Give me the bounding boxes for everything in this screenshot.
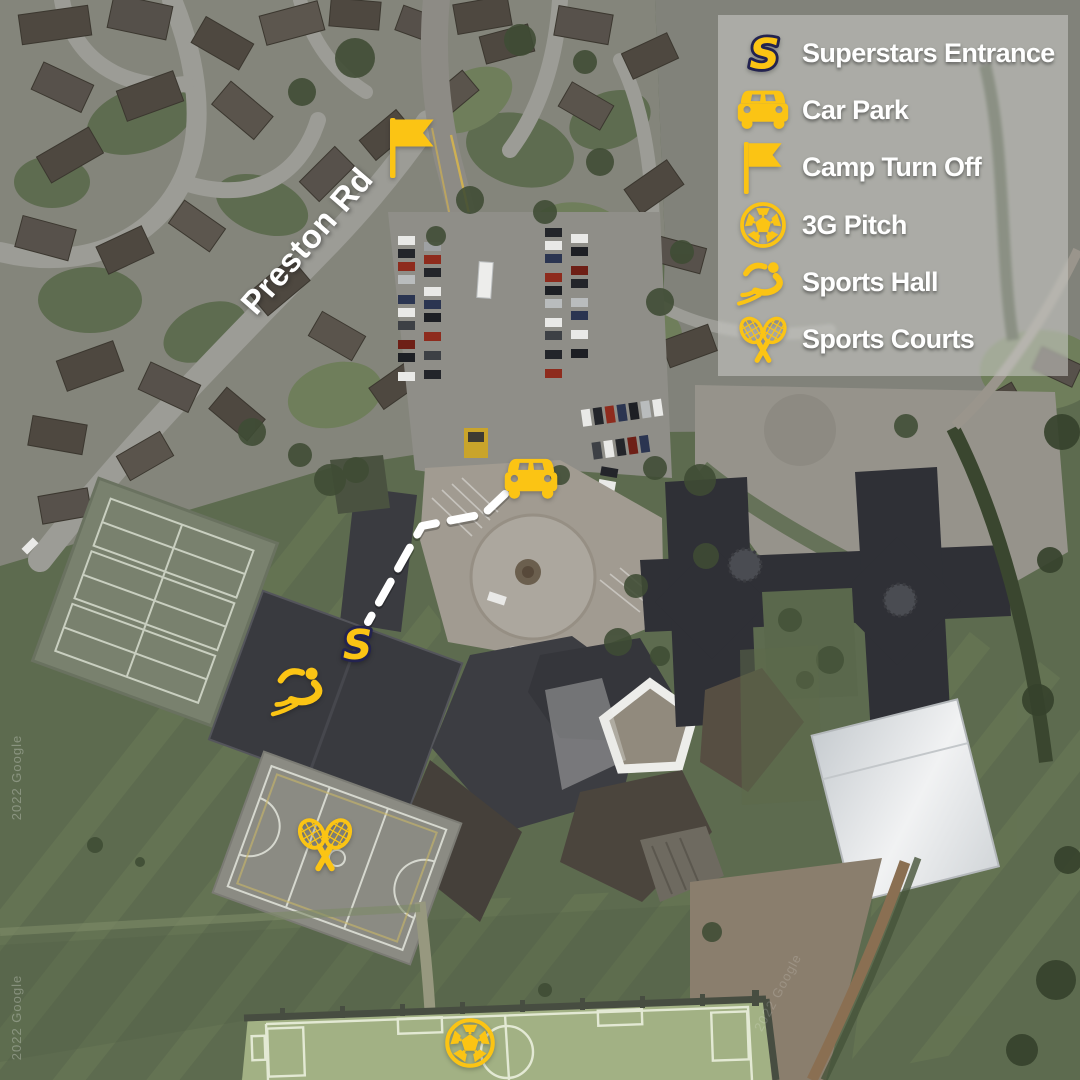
legend-item-sports-hall: Sports Hall <box>734 257 1052 309</box>
legend-item-label: 3G Pitch <box>802 210 907 241</box>
legend-item-label: Camp Turn Off <box>802 152 981 183</box>
superstars-s-icon <box>734 27 792 79</box>
car-icon <box>734 89 792 131</box>
football-icon <box>734 201 792 249</box>
legend-item-superstars-entrance: Superstars Entrance <box>734 27 1052 79</box>
legend-item-label: Superstars Entrance <box>802 38 1055 69</box>
legend-panel: Superstars Entrance Car Park Camp Turn O… <box>718 15 1068 376</box>
rackets-icon <box>734 313 792 367</box>
legend-item-label: Car Park <box>802 95 908 126</box>
legend-item-car-park: Car Park <box>734 84 1052 136</box>
flag-icon <box>734 142 792 194</box>
legend-item-camp-turn-off: Camp Turn Off <box>734 142 1052 194</box>
camp-location-map: S <box>0 0 1080 1080</box>
runner-icon <box>734 259 792 307</box>
legend-item-label: Sports Courts <box>802 324 974 355</box>
legend-item-3g-pitch: 3G Pitch <box>734 199 1052 251</box>
legend-item-sports-courts: Sports Courts <box>734 314 1052 366</box>
legend-item-label: Sports Hall <box>802 267 938 298</box>
